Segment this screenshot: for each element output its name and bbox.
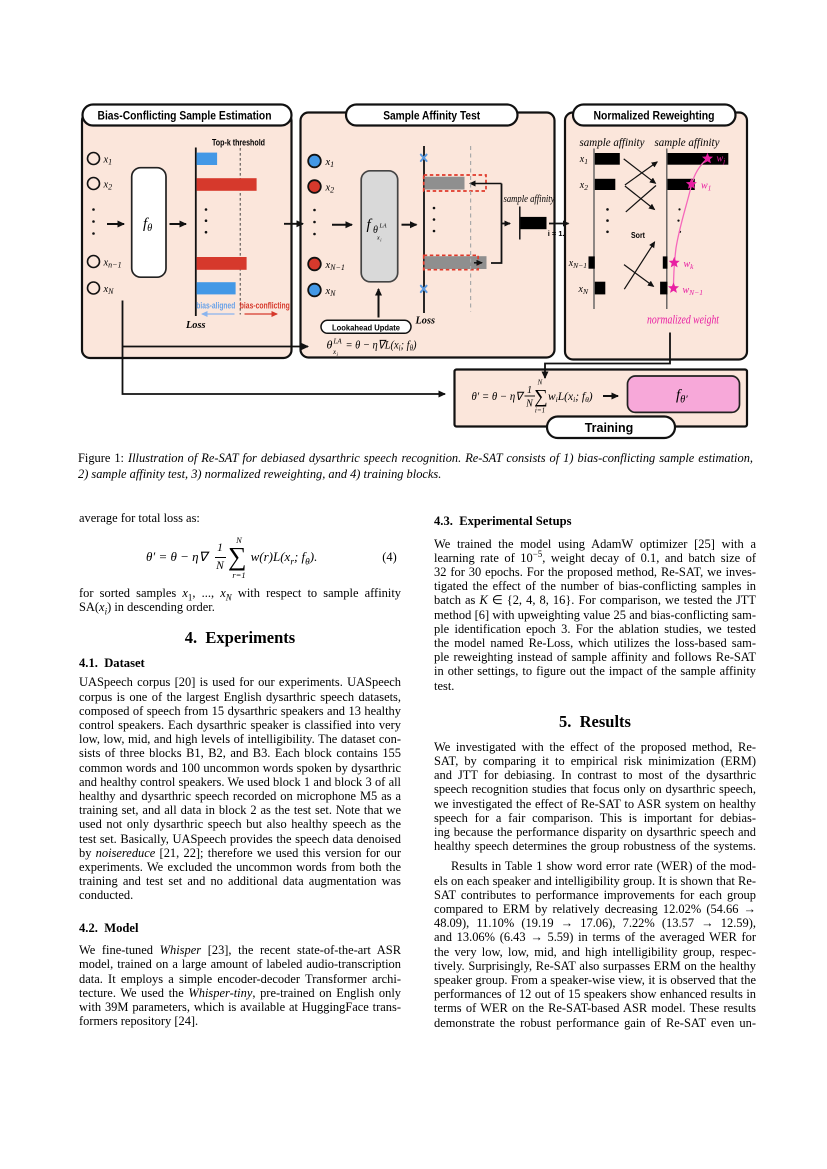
svg-text:θ: θ bbox=[373, 225, 378, 236]
svg-text:sample affinity: sample affinity bbox=[504, 193, 555, 205]
svg-text:LA: LA bbox=[379, 224, 387, 230]
svg-text:Sort: Sort bbox=[631, 231, 645, 240]
svg-text:= θ − η∇L(xi; fθ): = θ − η∇L(xi; fθ) bbox=[346, 338, 417, 353]
svg-text:Sample Affinity Test: Sample Affinity Test bbox=[383, 110, 480, 122]
svg-text:Loss: Loss bbox=[415, 315, 435, 327]
svg-text:bias-conflicting: bias-conflicting bbox=[240, 301, 290, 311]
svg-text:normalized weight: normalized weight bbox=[647, 313, 719, 327]
svg-text:i=1: i=1 bbox=[535, 407, 545, 415]
svg-text:Top-k threshold: Top-k threshold bbox=[212, 138, 265, 148]
svg-text:Normalized Reweighting: Normalized Reweighting bbox=[594, 110, 715, 122]
svg-text:LA: LA bbox=[333, 338, 343, 346]
svg-text:Loss: Loss bbox=[185, 319, 205, 331]
svg-text:sample affinity: sample affinity bbox=[580, 137, 646, 149]
svg-text:θ′ = θ − η∇: θ′ = θ − η∇ bbox=[472, 391, 525, 403]
svg-text:bias-aligned: bias-aligned bbox=[196, 301, 235, 311]
svg-text:θ: θ bbox=[327, 338, 333, 352]
svg-text:N: N bbox=[537, 379, 543, 387]
svg-text:∑: ∑ bbox=[534, 387, 548, 408]
svg-text:1: 1 bbox=[527, 385, 532, 396]
svg-text:Bias-Conflicting Sample Estima: Bias-Conflicting Sample Estimation bbox=[98, 108, 272, 122]
svg-text:Lookahead Update: Lookahead Update bbox=[332, 322, 400, 332]
svg-text:Training: Training bbox=[585, 421, 634, 435]
svg-text:N: N bbox=[525, 399, 534, 410]
svg-text:sample affinity: sample affinity bbox=[655, 137, 721, 149]
